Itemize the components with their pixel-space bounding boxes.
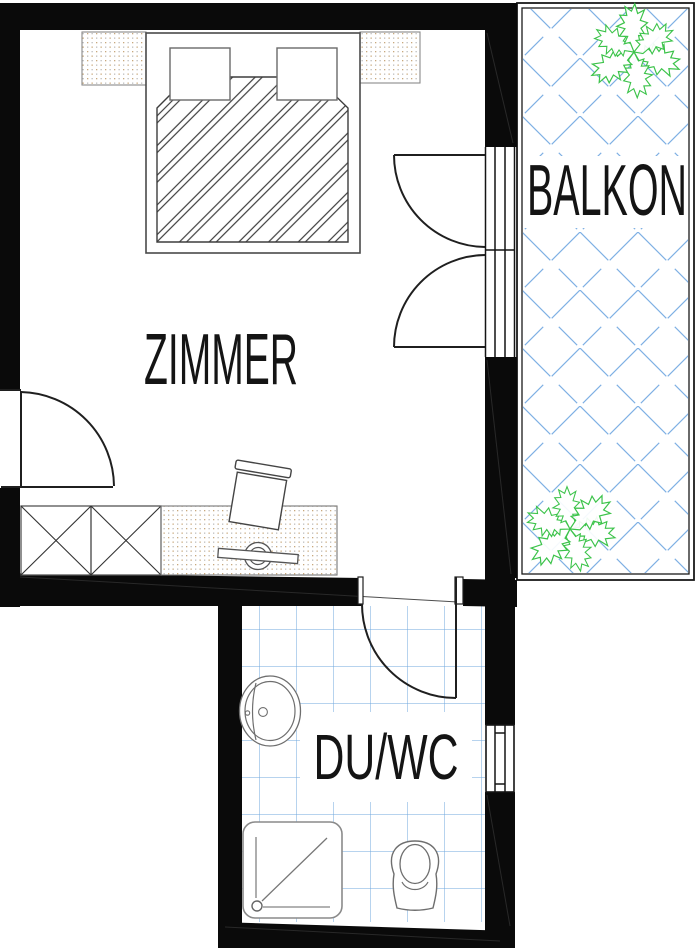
wall-top [0,3,517,30]
double-bed [146,33,360,253]
zimmer-label: ZIMMER [144,320,298,400]
shower-drain-icon [252,901,262,911]
bed-mattress [157,77,348,242]
floor-plan-svg: ZIMMER BALKON DU/WC [0,0,696,948]
wall-right-upper [485,30,517,147]
bathroom-window-icon [486,725,514,792]
floor-plan-page: ZIMMER BALKON DU/WC [0,0,696,948]
nightstand [82,32,146,85]
wall-room-bottom-left [0,573,363,606]
toilet [391,841,438,910]
balcony [517,3,694,580]
wall-right-lower [485,357,517,578]
washbasin [240,676,301,746]
nightstand [360,32,420,83]
pillow [170,48,230,100]
pillow [277,48,337,100]
duwc-label: DU/WC [314,721,459,793]
wardrobe [21,506,161,575]
wall-left-upper [0,3,20,390]
wall-bath-right-upper [485,578,515,725]
wall-bath-left [218,606,242,948]
balcony-crosshatch [523,9,688,573]
balkon-label: BALKON [527,151,687,231]
shower-tray [243,822,342,918]
